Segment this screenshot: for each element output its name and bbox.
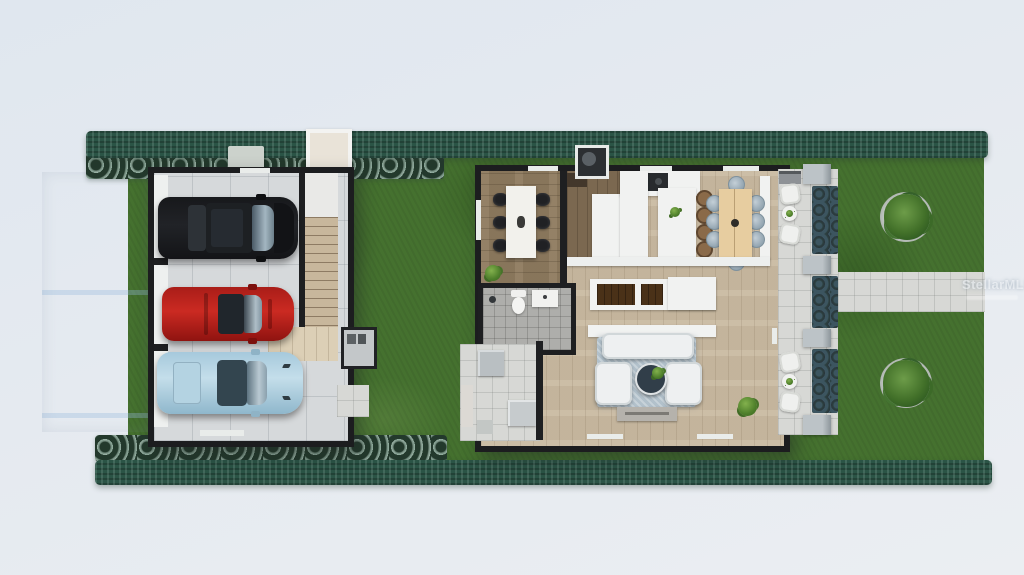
backyard-tree — [883, 360, 930, 407]
backyard — [0, 0, 1024, 575]
patio-column — [803, 256, 831, 274]
patio-column — [803, 164, 831, 184]
floor-plan-rendering: StellarMLS — [0, 0, 1024, 575]
patio-planter — [812, 276, 838, 328]
patio-chair — [779, 183, 802, 206]
watermark: StellarMLS — [962, 277, 1024, 292]
outdoor-grill — [779, 171, 801, 184]
patio-chair — [779, 391, 802, 414]
patio-chair — [778, 350, 801, 373]
patio-planter — [812, 186, 838, 254]
backyard-tree — [884, 194, 930, 240]
watermark-subline — [966, 295, 1018, 300]
patio-column — [803, 329, 831, 347]
patio-column — [803, 415, 831, 435]
patio-planter — [812, 349, 838, 413]
patio-chair — [778, 222, 801, 245]
patio-table-plant — [786, 210, 793, 217]
patio-table-plant — [786, 378, 793, 385]
